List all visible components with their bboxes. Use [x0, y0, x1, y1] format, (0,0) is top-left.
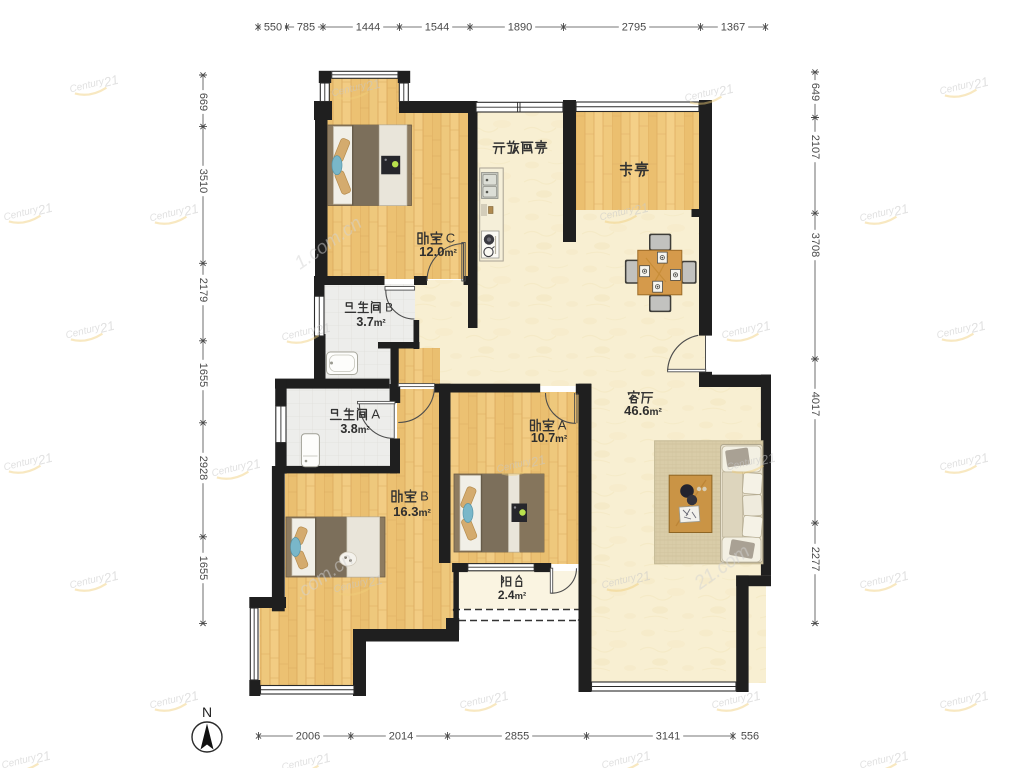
svg-text:B: B	[385, 300, 393, 314]
svg-text:1655: 1655	[197, 556, 209, 580]
svg-text:A: A	[371, 407, 380, 422]
svg-text:2014: 2014	[389, 730, 413, 742]
svg-text:C: C	[446, 231, 455, 246]
svg-text:2006: 2006	[296, 730, 320, 742]
svg-text:1367: 1367	[721, 21, 745, 33]
svg-text:649: 649	[809, 83, 821, 101]
svg-text:3.8m²: 3.8m²	[340, 422, 370, 436]
svg-text:2928: 2928	[197, 456, 209, 480]
svg-text:1890: 1890	[508, 21, 532, 33]
svg-text:4017: 4017	[809, 392, 821, 416]
svg-text:1544: 1544	[425, 21, 449, 33]
svg-text:785: 785	[297, 21, 315, 33]
svg-text:669: 669	[197, 93, 209, 111]
svg-text:A: A	[558, 418, 567, 433]
svg-text:10.7m²: 10.7m²	[531, 431, 568, 445]
svg-text:1655: 1655	[197, 363, 209, 387]
svg-text:3708: 3708	[809, 233, 821, 257]
svg-text:2277: 2277	[809, 547, 821, 571]
svg-text:2107: 2107	[809, 135, 821, 159]
svg-text:556: 556	[741, 730, 759, 742]
svg-text:N: N	[202, 704, 212, 720]
svg-text:2795: 2795	[622, 21, 646, 33]
svg-text:B: B	[420, 489, 429, 504]
svg-text:2855: 2855	[505, 730, 529, 742]
svg-text:3141: 3141	[656, 730, 680, 742]
svg-text:3510: 3510	[197, 169, 209, 193]
svg-text:550: 550	[264, 21, 282, 33]
svg-text:2.4m²: 2.4m²	[498, 588, 526, 602]
svg-text:1444: 1444	[356, 21, 380, 33]
svg-text:2179: 2179	[197, 278, 209, 302]
svg-text:3.7m²: 3.7m²	[356, 315, 386, 329]
